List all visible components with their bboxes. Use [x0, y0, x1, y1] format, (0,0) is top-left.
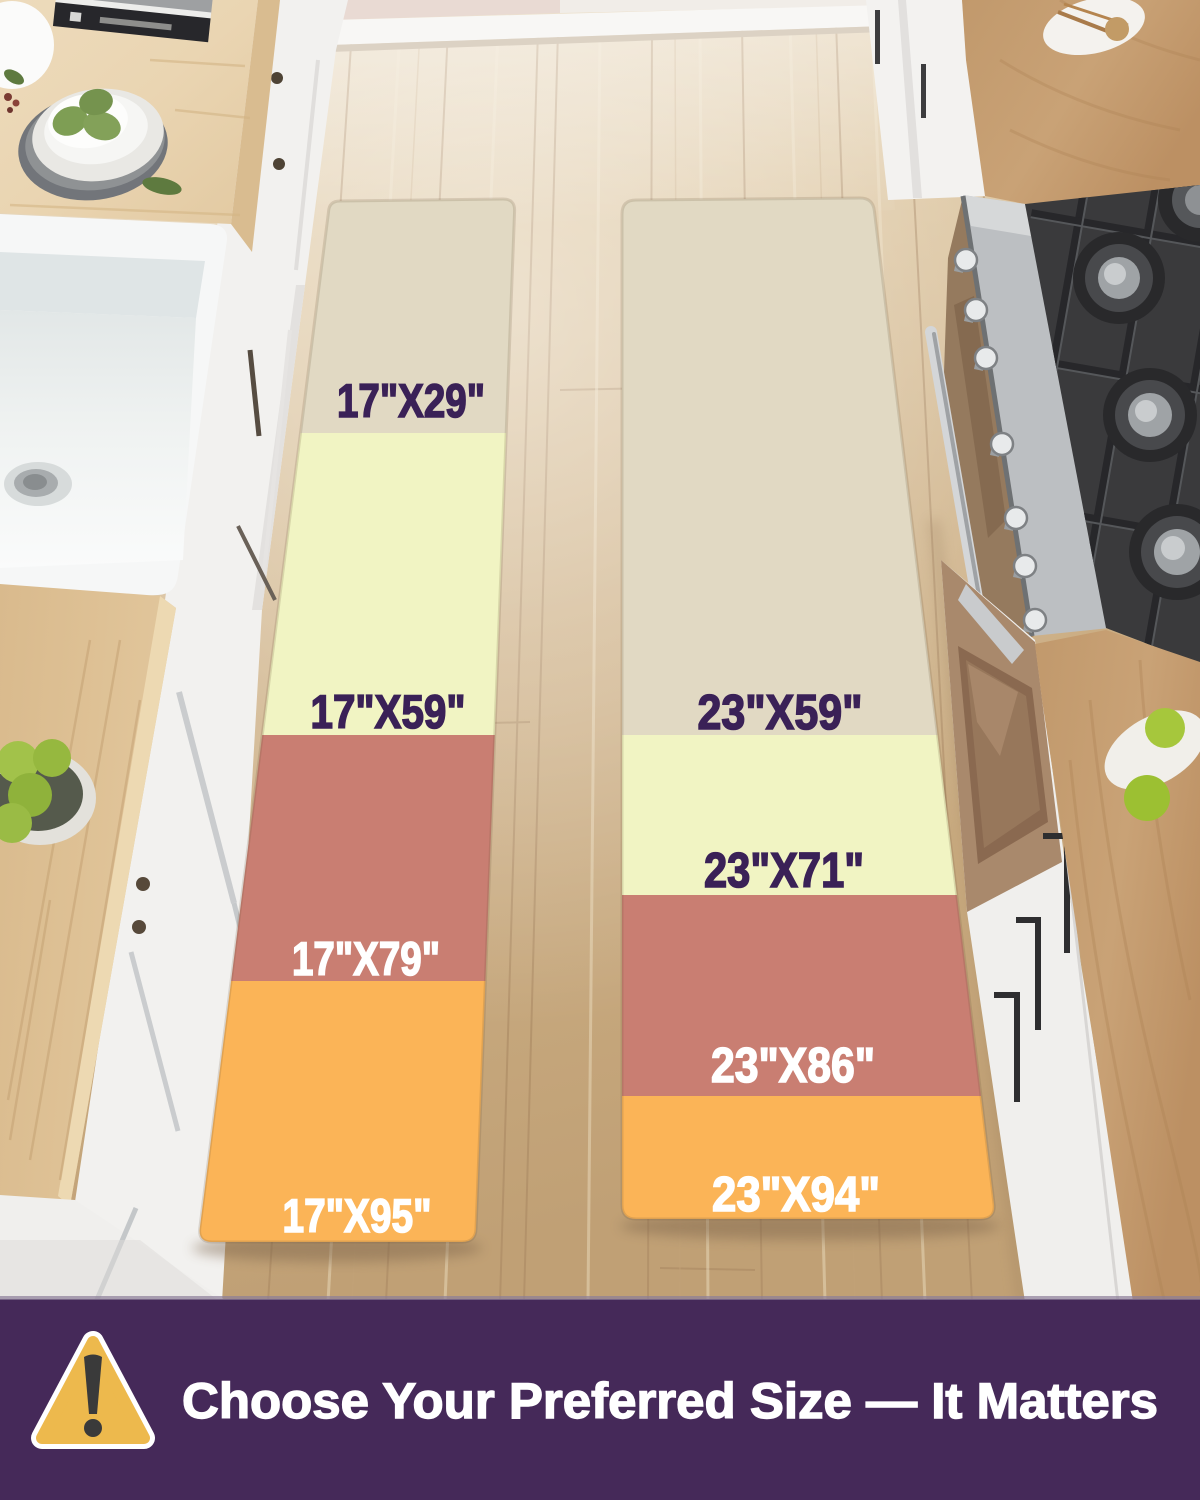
- svg-text:17"X95": 17"X95": [283, 1189, 432, 1242]
- svg-text:17"X59": 17"X59": [311, 685, 466, 738]
- svg-text:23"X94": 23"X94": [712, 1168, 880, 1222]
- svg-text:Choose Your Preferred Size — I: Choose Your Preferred Size — It Matters: [182, 1373, 1158, 1429]
- svg-text:23"X86": 23"X86": [711, 1039, 875, 1093]
- svg-text:23"X59": 23"X59": [698, 686, 863, 740]
- svg-text:17"X79": 17"X79": [292, 932, 440, 985]
- svg-text:17"X29": 17"X29": [337, 374, 485, 427]
- svg-text:23"X71": 23"X71": [704, 844, 864, 898]
